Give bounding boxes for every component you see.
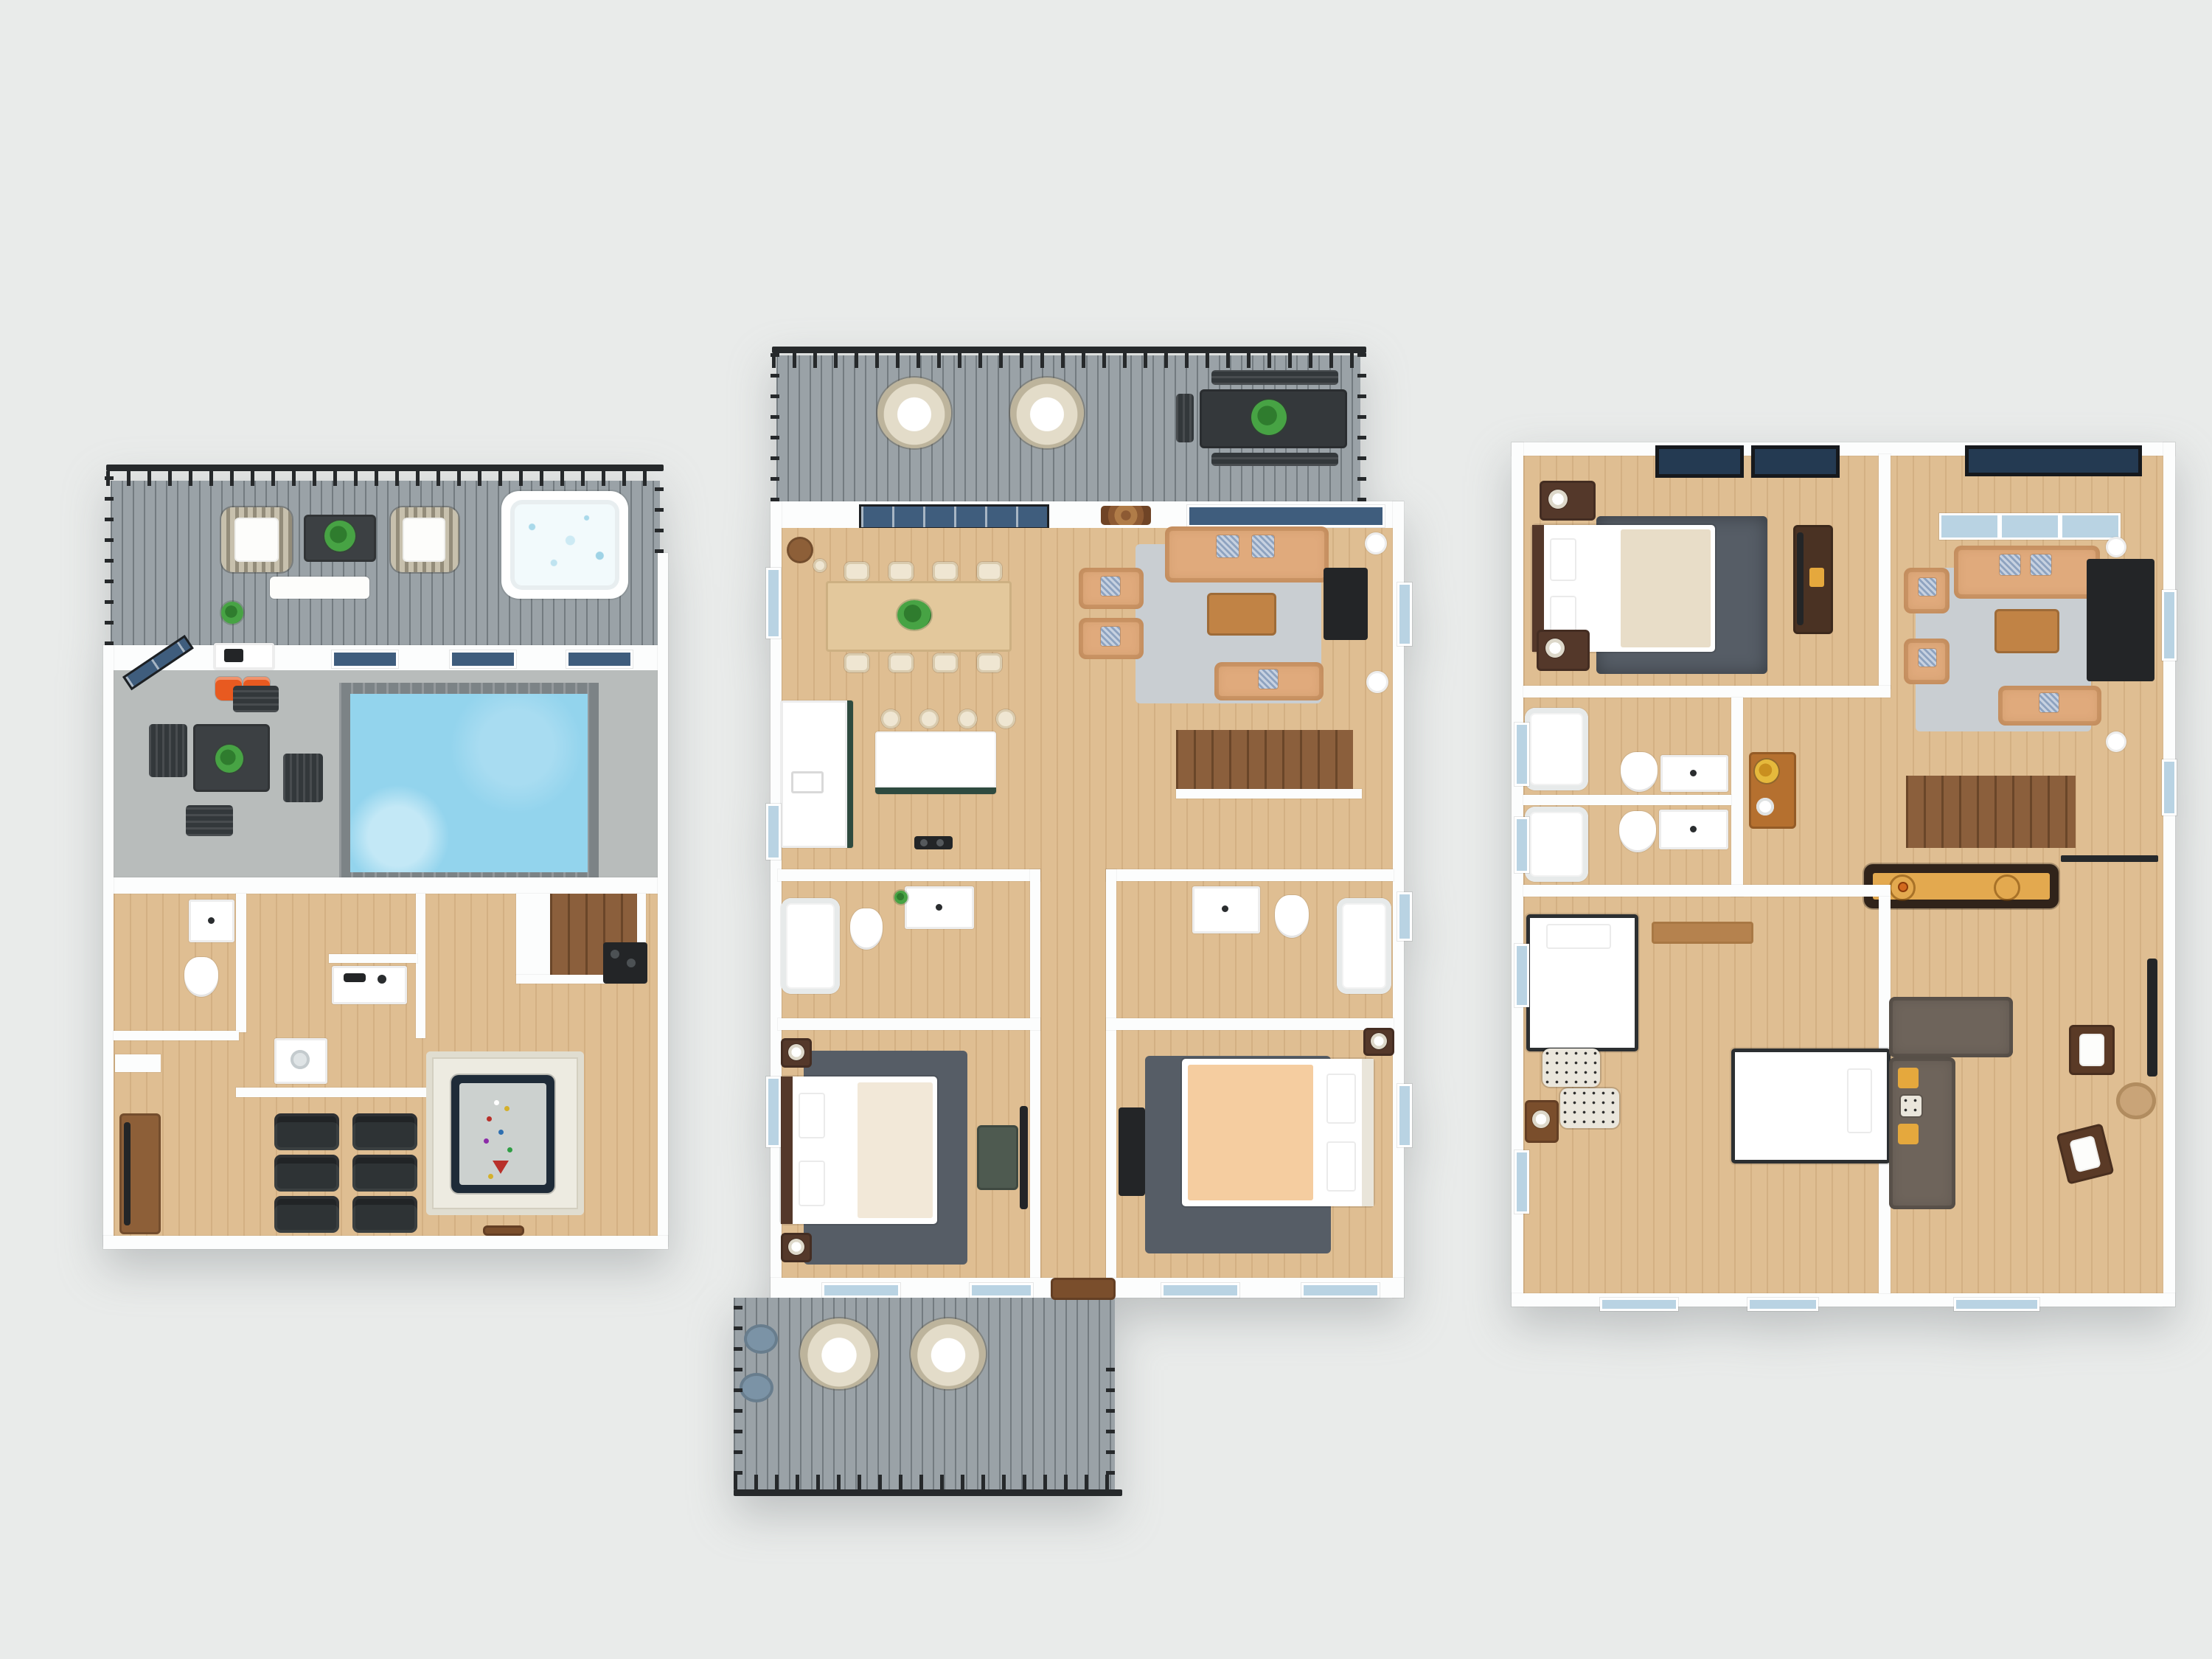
floor-plan-render-canvas [0, 0, 2212, 1659]
table-lamp [1548, 490, 1568, 509]
throw-pillow [2039, 693, 2059, 712]
staircase [1176, 730, 1353, 789]
coffee-table [1994, 609, 2059, 653]
hanging-egg-chair [877, 378, 951, 448]
window [566, 650, 633, 668]
dining-chair [977, 653, 1002, 672]
interior-wall [108, 877, 661, 894]
bedroom-wall [1879, 454, 1891, 689]
theater-recliner [352, 1196, 417, 1233]
blanket [1621, 529, 1711, 647]
hanging-egg-chair [1010, 378, 1084, 448]
bathroom-wall [1523, 795, 1731, 805]
kitchen-sink [791, 771, 824, 793]
burner [936, 839, 944, 846]
stair-rail-wall [1176, 789, 1362, 799]
skylight [1965, 445, 2142, 476]
bed [781, 1077, 937, 1224]
exterior-wall-right [2163, 442, 2175, 1307]
window [766, 804, 781, 860]
burner [627, 959, 636, 967]
window [1514, 1150, 1529, 1214]
grill-counter [214, 643, 274, 669]
theater-recliner [274, 1196, 339, 1233]
bathtub [1337, 898, 1391, 994]
bedroom-wall [778, 1018, 1040, 1030]
tv-console [1324, 568, 1368, 640]
doormat [483, 1225, 524, 1236]
skylight [1751, 445, 1840, 478]
outdoor-bench [270, 577, 369, 599]
nightstand [781, 1038, 812, 1068]
table-lamp [1545, 639, 1565, 658]
bathroom-wall [1731, 698, 1743, 897]
round-rug [2116, 1082, 2156, 1119]
bathroom-vanity [1659, 810, 1728, 849]
table-lamp [788, 1044, 804, 1060]
wicker-lounge-chair [391, 507, 459, 572]
bathroom-wall [1106, 869, 1394, 881]
theater-recliner [352, 1113, 417, 1150]
wicker-lounge-chair [221, 507, 292, 572]
loveseat [1998, 686, 2101, 726]
window [1600, 1298, 1678, 1311]
hallway-wall [1106, 869, 1116, 1282]
patterned-pouf [1543, 1048, 1600, 1087]
bedroom-wall [1523, 686, 1891, 698]
bathtub [1525, 708, 1588, 790]
beverage-station [603, 942, 647, 984]
toilet [1275, 895, 1309, 938]
window [1954, 1298, 2039, 1311]
window [822, 1283, 900, 1298]
window [1161, 1283, 1239, 1298]
hanging-egg-chair [800, 1318, 878, 1389]
adirondack-chair [233, 686, 279, 712]
toilet [1619, 811, 1656, 852]
blanket [858, 1082, 933, 1218]
window [766, 568, 781, 639]
chair-cushion [234, 518, 279, 562]
throw-pillow [1898, 1068, 1919, 1088]
wall-desk [2147, 959, 2157, 1077]
throw-pillow [1898, 1124, 1919, 1144]
nightstand [1363, 1028, 1394, 1056]
closet-wall [236, 1088, 426, 1097]
exterior-wall-right [658, 553, 668, 1246]
dining-chair [844, 653, 869, 672]
nightstand [1537, 630, 1590, 671]
loveseat [1214, 662, 1324, 700]
window [332, 650, 398, 668]
bathroom-vanity [1660, 755, 1728, 792]
window [2162, 759, 2177, 815]
window [1397, 1084, 1412, 1147]
chair-cushion [2069, 1135, 2101, 1173]
console-table-with-flowers [1749, 752, 1796, 829]
floor-lower-level [103, 465, 671, 1261]
potted-plant [1251, 400, 1287, 435]
throw-pillow [1217, 535, 1239, 557]
window [1514, 723, 1529, 786]
deck-railing-top [772, 347, 1366, 353]
window [1301, 1283, 1380, 1298]
theater-recliner-row [274, 1113, 339, 1234]
pool-tile-border [339, 683, 599, 883]
headboard [781, 1077, 793, 1224]
exterior-wall-bottom [103, 1236, 668, 1249]
theater-recliner [274, 1113, 339, 1150]
armchair [1079, 568, 1144, 609]
table-lamp [788, 1239, 804, 1255]
headboard [1362, 1059, 1374, 1206]
deck-railing-right [655, 465, 664, 553]
bathtub [1525, 807, 1588, 882]
bed [1182, 1059, 1374, 1206]
pillow [799, 1093, 825, 1138]
bathtub [781, 898, 840, 994]
skylight [1655, 445, 1744, 478]
stair-landing [516, 894, 550, 975]
side-table [2106, 731, 2126, 752]
bathroom-wall [114, 1031, 239, 1040]
burner [920, 839, 928, 846]
tv-screen [124, 1122, 131, 1225]
window [1397, 582, 1412, 646]
throw-pillow [1919, 578, 1936, 596]
deck-railing-top [106, 465, 664, 471]
floating-dresser [1652, 922, 1753, 944]
window [1514, 944, 1529, 1007]
throw-pillow [1259, 669, 1278, 689]
chair-cushion [403, 518, 445, 562]
window-band [1939, 513, 2121, 540]
dining-chair [888, 562, 914, 581]
window [1514, 817, 1529, 873]
throw-pillow [1919, 649, 1936, 667]
accent-chair [2069, 1025, 2115, 1075]
office-wall [416, 894, 425, 1038]
deck-railing-left [771, 347, 779, 501]
shuffleboard-table [1864, 864, 2059, 908]
deck-railing-pickets-top [772, 353, 1366, 368]
armchair [1904, 639, 1950, 684]
hot-tub [501, 491, 628, 599]
bedside-table [1525, 1100, 1559, 1143]
sliding-glass-doors [859, 504, 1049, 529]
window [1397, 892, 1412, 941]
throw-pillow [1101, 577, 1120, 596]
deck-railing-pickets-top [106, 471, 664, 486]
faucet [1222, 905, 1228, 912]
yellow-flowers [1755, 759, 1778, 783]
toilet [1621, 752, 1658, 792]
artwork [1809, 568, 1824, 587]
vanity-plant [894, 891, 908, 904]
throw-pillow [1901, 1096, 1921, 1116]
washer-door [291, 1050, 310, 1069]
bathroom-vanity [1192, 886, 1260, 933]
throw-pillow [1101, 627, 1120, 646]
desk-mic [378, 975, 386, 984]
deck-railing-left [105, 465, 114, 645]
kitchen-counter [781, 700, 853, 848]
bar-stool [813, 559, 827, 572]
bathroom-vanity [189, 900, 234, 942]
hallway-wall [1030, 869, 1040, 1282]
bar-table [787, 537, 813, 563]
range-cooktop [914, 836, 953, 849]
billiard-balls [494, 1100, 499, 1105]
pouf [740, 1373, 773, 1402]
pillow [799, 1161, 825, 1206]
bar-stool [996, 709, 1015, 728]
pillow [1847, 1068, 1872, 1133]
table-centerpiece [897, 600, 931, 630]
window [766, 1077, 781, 1147]
toilet [184, 957, 218, 997]
puck [1899, 883, 1907, 891]
table-lamp [1532, 1110, 1550, 1128]
entry-shelf [115, 1054, 161, 1072]
deck-railing-bottom [734, 1489, 1122, 1496]
armchair [1079, 618, 1144, 659]
outdoor-bench [1211, 453, 1338, 466]
grill-sink [224, 649, 243, 662]
faucet [1690, 770, 1697, 776]
dresser [1540, 481, 1596, 521]
pillow [1326, 1074, 1356, 1124]
outdoor-bench [1211, 370, 1338, 385]
dining-chair [933, 653, 958, 672]
pillow [1546, 924, 1611, 949]
window [970, 1283, 1033, 1298]
faucet [208, 917, 215, 924]
kitchen-island [875, 731, 996, 794]
desktop-monitor [344, 973, 366, 982]
pillow [1326, 1141, 1356, 1192]
bathroom-wall [236, 894, 246, 1032]
window [1747, 1298, 1818, 1311]
exterior-wall-left [103, 645, 114, 1246]
doormat [1051, 1278, 1116, 1300]
patterned-pouf [1560, 1088, 1619, 1128]
paper-roll [1756, 798, 1774, 815]
fireplace-console-medallion [1101, 506, 1151, 525]
bar-stool [919, 709, 939, 728]
clerestory-window [1187, 505, 1385, 527]
ball-rack [493, 1161, 509, 1174]
sectional-sofa [1889, 1057, 1955, 1209]
dining-chair [977, 562, 1002, 581]
blanket [1188, 1065, 1313, 1200]
faucet [936, 904, 942, 911]
washer [274, 1038, 327, 1084]
theater-recliner-row [352, 1113, 417, 1234]
swimming-pool-water [350, 694, 588, 872]
sofa [1954, 546, 2100, 599]
pool-table [451, 1075, 554, 1193]
hot-tub-basin [510, 500, 619, 590]
dining-chair [933, 562, 958, 581]
potted-plant [324, 521, 355, 552]
throw-pillow [2000, 554, 2020, 575]
lane-circle [1994, 874, 2020, 901]
desk [332, 966, 407, 1004]
tv-console [1119, 1107, 1145, 1196]
throw-pillow [1252, 535, 1274, 557]
dining-chair [844, 562, 869, 581]
table-lamp [1371, 1033, 1387, 1049]
twin-bed [1731, 1048, 1891, 1164]
bar-stool [881, 709, 900, 728]
hanging-egg-chair [911, 1318, 986, 1389]
floor-upper-level [1512, 442, 2175, 1316]
tv-screen [1797, 532, 1804, 625]
bathroom-wall [1523, 885, 1891, 897]
chair-cushion [2079, 1034, 2104, 1066]
sofa [1165, 526, 1329, 582]
potted-plant [221, 602, 243, 624]
outdoor-chair [1176, 394, 1194, 442]
office-wall [329, 954, 417, 963]
deck-railing-left [734, 1298, 742, 1495]
media-console [119, 1113, 161, 1234]
side-table [1366, 671, 1388, 693]
burner [611, 950, 619, 959]
floor-main-level [734, 347, 1412, 1541]
coffee-table [1207, 593, 1276, 636]
bedroom-wall [1106, 1018, 1394, 1030]
pouf [744, 1324, 778, 1354]
twin-bed [1526, 914, 1638, 1051]
deck-railing-right [1357, 347, 1366, 501]
side-table [2106, 537, 2126, 557]
bathroom-wall [778, 869, 1040, 881]
window [2162, 590, 2177, 661]
theater-recliner [274, 1155, 339, 1192]
adirondack-chair [186, 805, 233, 836]
dining-chair [888, 653, 914, 672]
window [450, 650, 516, 668]
media-dresser [1793, 525, 1833, 634]
armchair [1904, 568, 1950, 613]
side-table [1365, 532, 1387, 554]
theater-recliner [352, 1155, 417, 1192]
potted-plant [215, 745, 243, 773]
entertainment-center [2087, 559, 2154, 681]
bar-stool [958, 709, 977, 728]
wall-tv [1020, 1106, 1028, 1209]
nightstand [781, 1233, 812, 1262]
sectional-sofa [1889, 997, 2013, 1057]
deck-railing-pickets-bottom [734, 1475, 1122, 1489]
faucet [1690, 826, 1697, 832]
adirondack-chair [283, 754, 323, 802]
adirondack-chair [149, 724, 187, 777]
stair-handrail [2061, 855, 2158, 862]
pillow [1550, 538, 1576, 581]
throw-pillow [2031, 554, 2051, 575]
staircase [1906, 776, 2076, 848]
dresser [977, 1125, 1018, 1190]
toilet [850, 908, 883, 950]
bathroom-vanity [905, 886, 974, 929]
